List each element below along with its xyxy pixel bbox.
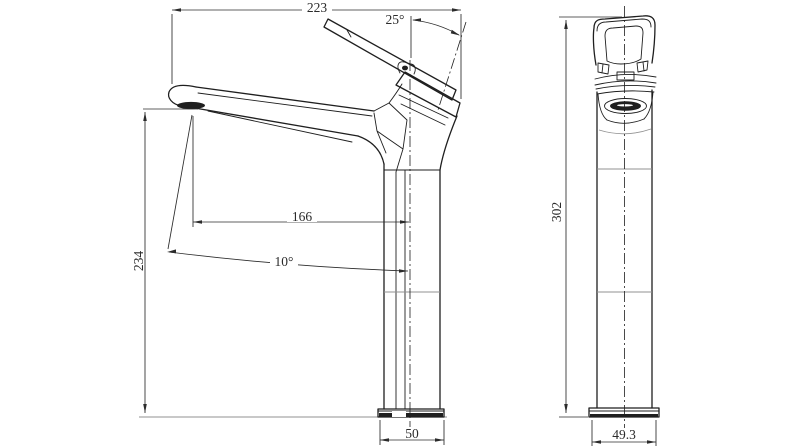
dim-label-reach: 223	[307, 0, 328, 15]
base-flange-front	[589, 408, 659, 417]
dim-base-width: 50	[380, 420, 444, 445]
dim-label-height: 234	[131, 251, 146, 272]
dim-reach: 223	[172, 0, 461, 99]
dim-spout-angle: 10°	[167, 115, 408, 273]
angle-ray	[168, 115, 192, 249]
spout-front-bottom-arc	[607, 119, 644, 123]
collar-band-lower	[596, 85, 655, 94]
dim-spout-reach: 166	[193, 116, 409, 227]
spout-top-edge	[196, 87, 374, 111]
dim-label-front-base-width: 49.3	[612, 427, 636, 442]
shoulder-arc	[599, 129, 651, 134]
pivot-dot	[402, 66, 408, 71]
spout-bottom-inner-edge	[208, 111, 352, 142]
dim-front-height: 302	[549, 17, 623, 417]
dim-label-base-width: 50	[405, 426, 419, 441]
base-flange-band	[379, 413, 443, 417]
elbow-curve	[358, 136, 384, 164]
handle-front-inner-top	[597, 19, 651, 31]
aerator-front-highlight	[617, 104, 633, 106]
dim-handle-angle: 25°	[381, 12, 460, 59]
handle-cap	[396, 72, 460, 117]
body-column	[384, 164, 440, 409]
body-column-inner-lines	[384, 170, 440, 409]
handle-bracket-left	[598, 63, 609, 74]
collar-center-tab	[617, 72, 634, 80]
handle-bracket-right	[637, 61, 648, 72]
junction-facets	[374, 103, 407, 172]
handle-lever	[324, 19, 456, 100]
front-view: 302 49.3	[549, 6, 660, 446]
handle-loop	[605, 26, 643, 64]
centerline-handle-axis	[438, 22, 466, 110]
dim-height: 234	[131, 109, 199, 413]
extension-line	[172, 14, 461, 99]
base-flange-side	[378, 409, 444, 417]
dim-label-spout-angle: 10°	[275, 254, 294, 269]
technical-drawing: 223 25° 166 10°	[0, 0, 800, 447]
extension-line	[559, 17, 622, 417]
drawing-sheet: 223 25° 166 10°	[0, 0, 800, 447]
dim-label-front-height: 302	[549, 202, 564, 222]
dim-front-base-width: 49.3	[592, 420, 656, 446]
dim-label-handle-angle: 25°	[386, 12, 405, 27]
arrowhead	[412, 18, 460, 35]
dim-label-spout-reach: 166	[292, 209, 313, 224]
side-view: 223 25° 166 10°	[131, 0, 467, 445]
base-flange-notch	[392, 411, 406, 417]
base-flange-front-band	[590, 414, 658, 417]
